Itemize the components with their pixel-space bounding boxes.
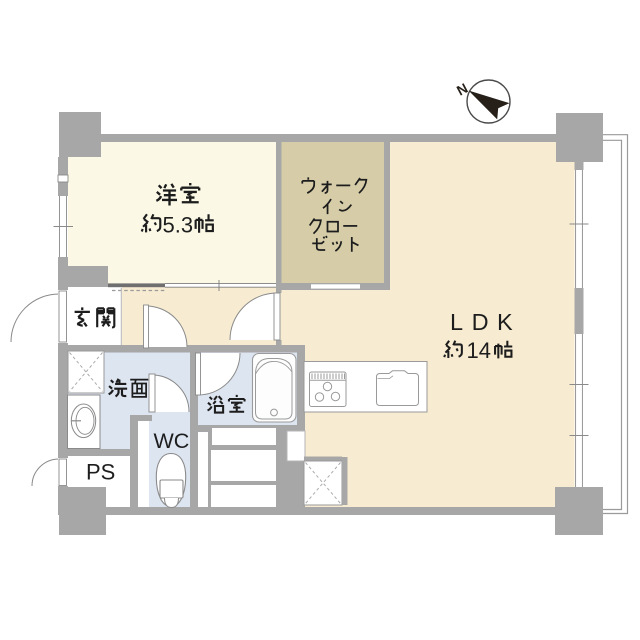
svg-text:PS: PS [86, 460, 115, 485]
svg-text:5.3: 5.3 [163, 213, 194, 238]
svg-text:WC: WC [154, 429, 190, 453]
svg-text:14: 14 [467, 338, 491, 363]
svg-text:LDK: LDK [450, 309, 521, 335]
